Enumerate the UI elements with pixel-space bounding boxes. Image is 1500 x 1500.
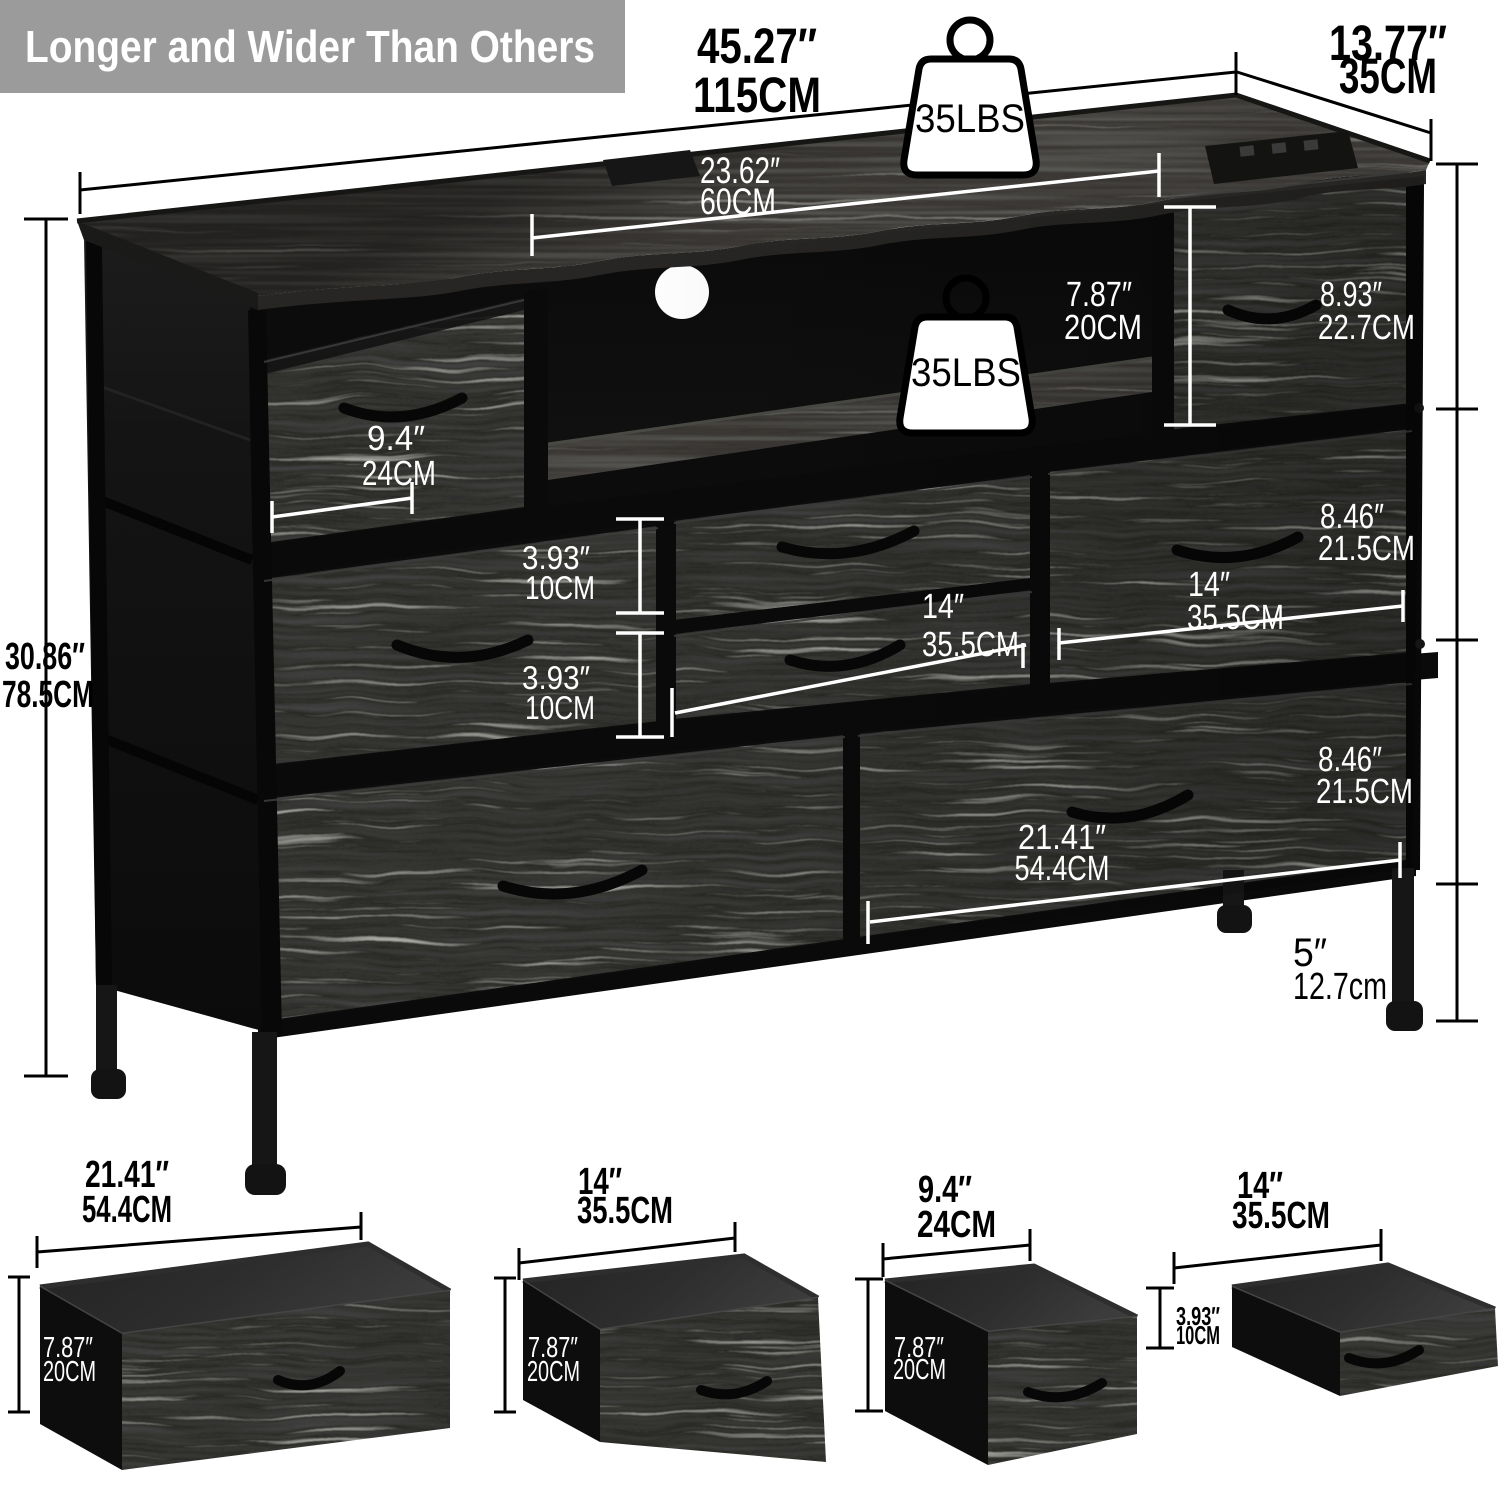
svg-text:35LBS: 35LBS: [911, 351, 1021, 395]
svg-text:54.4CM: 54.4CM: [1015, 849, 1110, 888]
svg-text:24CM: 24CM: [917, 1204, 996, 1246]
svg-text:115CM: 115CM: [693, 67, 821, 123]
svg-text:35.5CM: 35.5CM: [1232, 1195, 1330, 1237]
svg-text:21.5CM: 21.5CM: [1318, 529, 1415, 568]
svg-text:24CM: 24CM: [362, 454, 436, 493]
svg-text:60CM: 60CM: [700, 181, 776, 222]
svg-text:35LBS: 35LBS: [915, 97, 1025, 141]
svg-text:Longer and Wider Than Others: Longer and Wider Than Others: [25, 21, 595, 72]
svg-text:21.5CM: 21.5CM: [1316, 772, 1413, 811]
svg-text:35CM: 35CM: [1339, 48, 1437, 104]
svg-text:12.7cm: 12.7cm: [1293, 966, 1387, 1008]
svg-text:10CM: 10CM: [525, 689, 595, 726]
svg-text:20CM: 20CM: [893, 1354, 946, 1386]
svg-text:45.27″: 45.27″: [697, 18, 817, 74]
svg-text:78.5CM: 78.5CM: [2, 674, 94, 716]
svg-text:20CM: 20CM: [43, 1356, 96, 1388]
svg-text:22.7CM: 22.7CM: [1318, 308, 1415, 347]
svg-text:20CM: 20CM: [1064, 308, 1142, 347]
svg-text:10CM: 10CM: [1176, 1320, 1220, 1350]
svg-text:54.4CM: 54.4CM: [82, 1189, 172, 1231]
svg-text:35.5CM: 35.5CM: [922, 625, 1019, 664]
svg-text:35.5CM: 35.5CM: [577, 1190, 673, 1232]
svg-text:14″: 14″: [922, 587, 964, 626]
svg-text:35.5CM: 35.5CM: [1187, 598, 1284, 637]
svg-text:10CM: 10CM: [525, 569, 595, 606]
svg-text:20CM: 20CM: [527, 1356, 580, 1388]
svg-text:9.4″: 9.4″: [367, 419, 425, 458]
svg-text:30.86″: 30.86″: [5, 636, 85, 678]
